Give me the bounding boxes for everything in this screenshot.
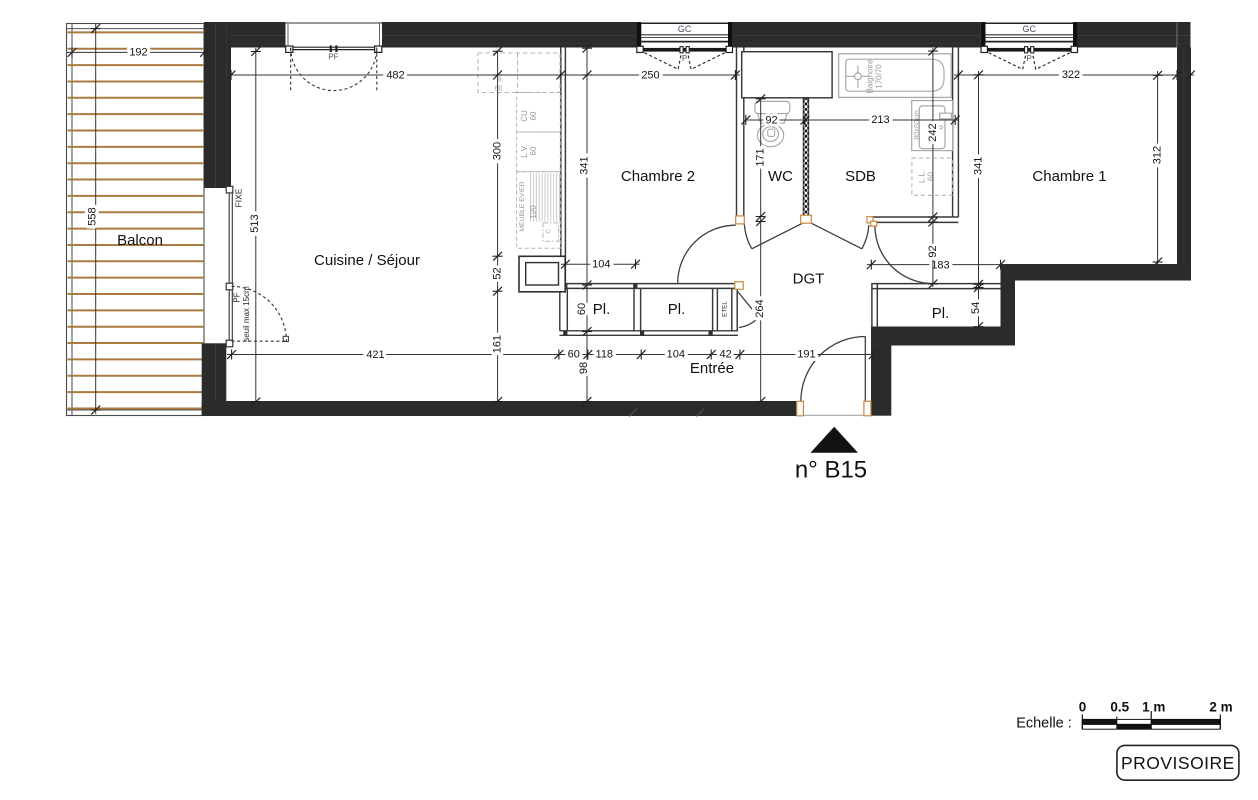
- svg-text:PF: PF: [232, 292, 241, 302]
- svg-text:421: 421: [366, 349, 384, 361]
- svg-text:0.5: 0.5: [1110, 700, 1129, 715]
- svg-text:L.V.: L.V.: [520, 144, 529, 158]
- svg-text:104: 104: [667, 349, 685, 361]
- svg-text:171: 171: [755, 148, 767, 166]
- svg-text:322: 322: [1062, 69, 1080, 81]
- svg-text:P: P: [1027, 54, 1032, 63]
- svg-text:60: 60: [529, 111, 538, 120]
- svg-text:54: 54: [970, 302, 982, 314]
- svg-text:Baignoire: Baignoire: [865, 59, 874, 93]
- svg-text:P: P: [682, 54, 687, 63]
- svg-text:PF: PF: [328, 53, 338, 62]
- svg-text:118: 118: [596, 348, 614, 360]
- svg-text:Pl.: Pl.: [932, 305, 950, 322]
- svg-text:92: 92: [927, 245, 939, 257]
- svg-text:161: 161: [492, 335, 504, 353]
- svg-text:0: 0: [1079, 700, 1087, 715]
- svg-text:213: 213: [871, 114, 889, 126]
- svg-text:80x60cm: 80x60cm: [912, 110, 921, 140]
- svg-text:250: 250: [641, 69, 659, 81]
- svg-text:Balcon: Balcon: [117, 232, 163, 249]
- svg-text:MEUBLE EVIER: MEUBLE EVIER: [519, 181, 526, 231]
- svg-text:312: 312: [1152, 146, 1164, 164]
- svg-text:Entrée: Entrée: [690, 360, 734, 377]
- svg-text:98: 98: [578, 362, 590, 374]
- svg-text:Echelle :: Echelle :: [1016, 716, 1072, 732]
- svg-text:CU: CU: [520, 110, 529, 122]
- svg-text:42: 42: [719, 349, 731, 361]
- svg-text:FIXE: FIXE: [233, 188, 243, 207]
- svg-text:Chambre 2: Chambre 2: [621, 168, 695, 185]
- svg-text:60: 60: [529, 146, 538, 155]
- svg-text:170/70: 170/70: [874, 64, 883, 89]
- svg-text:GC: GC: [678, 24, 692, 34]
- svg-text:52: 52: [492, 267, 504, 279]
- svg-text:192: 192: [129, 46, 147, 58]
- svg-text:341: 341: [973, 157, 985, 175]
- svg-text:558: 558: [87, 207, 99, 225]
- svg-text:300: 300: [492, 142, 504, 160]
- svg-text:ETEL: ETEL: [722, 301, 729, 317]
- svg-text:2 m: 2 m: [1209, 700, 1232, 715]
- svg-text:1 m: 1 m: [1142, 700, 1165, 715]
- svg-text:482: 482: [386, 69, 404, 81]
- svg-text:60: 60: [568, 348, 580, 360]
- svg-text:C: C: [547, 229, 553, 234]
- svg-text:92: 92: [765, 115, 777, 127]
- svg-text:341: 341: [579, 156, 591, 174]
- svg-text:n° B15: n° B15: [795, 457, 867, 484]
- svg-text:WC: WC: [768, 168, 793, 185]
- svg-text:L.L.: L.L.: [917, 170, 926, 183]
- svg-text:Cuisine / Séjour: Cuisine / Séjour: [314, 252, 420, 269]
- svg-text:PROVISOIRE: PROVISOIRE: [1121, 753, 1235, 773]
- svg-text:60: 60: [926, 172, 935, 181]
- svg-text:DGT: DGT: [793, 271, 825, 288]
- svg-text:GC: GC: [1023, 24, 1037, 34]
- svg-text:seuil max 15cm: seuil max 15cm: [242, 286, 251, 342]
- svg-text:191: 191: [797, 348, 815, 360]
- svg-text:Pl.: Pl.: [593, 301, 611, 318]
- svg-text:264: 264: [754, 299, 766, 317]
- svg-text:120: 120: [529, 205, 538, 219]
- svg-text:60: 60: [495, 86, 503, 93]
- svg-text:60: 60: [576, 303, 588, 315]
- svg-text:242: 242: [927, 123, 939, 141]
- svg-text:Chambre 1: Chambre 1: [1032, 168, 1106, 185]
- svg-text:104: 104: [592, 258, 610, 270]
- svg-text:SDB: SDB: [845, 168, 876, 185]
- svg-text:513: 513: [249, 214, 261, 232]
- svg-text:183: 183: [931, 259, 949, 271]
- svg-text:Pl.: Pl.: [668, 301, 686, 318]
